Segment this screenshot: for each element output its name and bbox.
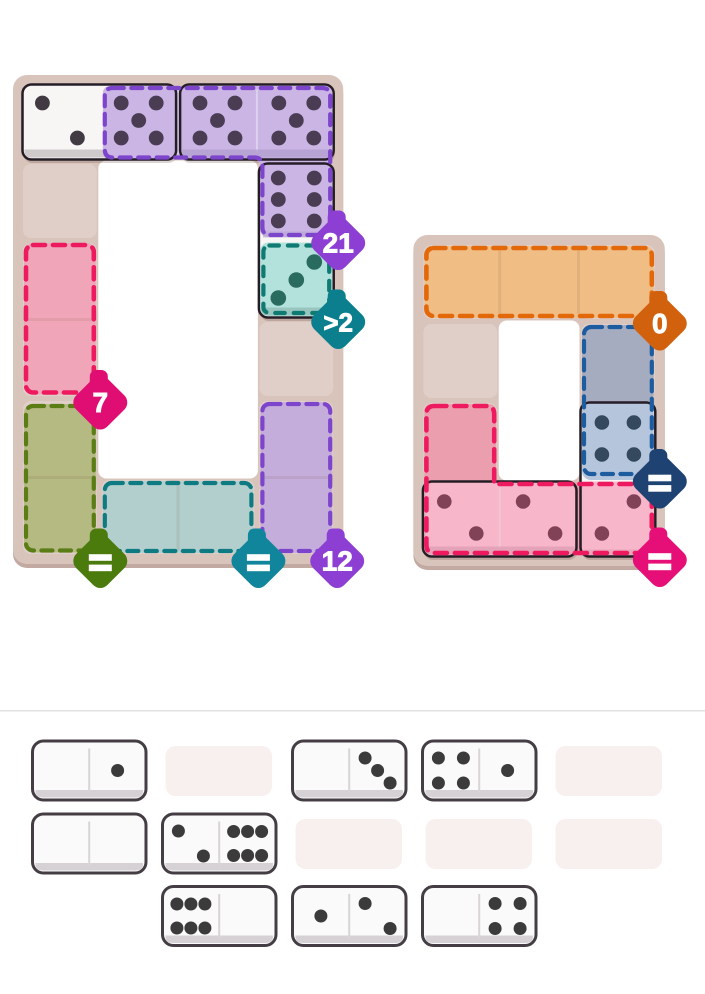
svg-text:21: 21: [323, 228, 354, 259]
svg-text:0: 0: [652, 308, 668, 339]
svg-text:12: 12: [322, 546, 353, 577]
svg-text:7: 7: [93, 387, 109, 418]
svg-text:>2: >2: [323, 308, 353, 338]
